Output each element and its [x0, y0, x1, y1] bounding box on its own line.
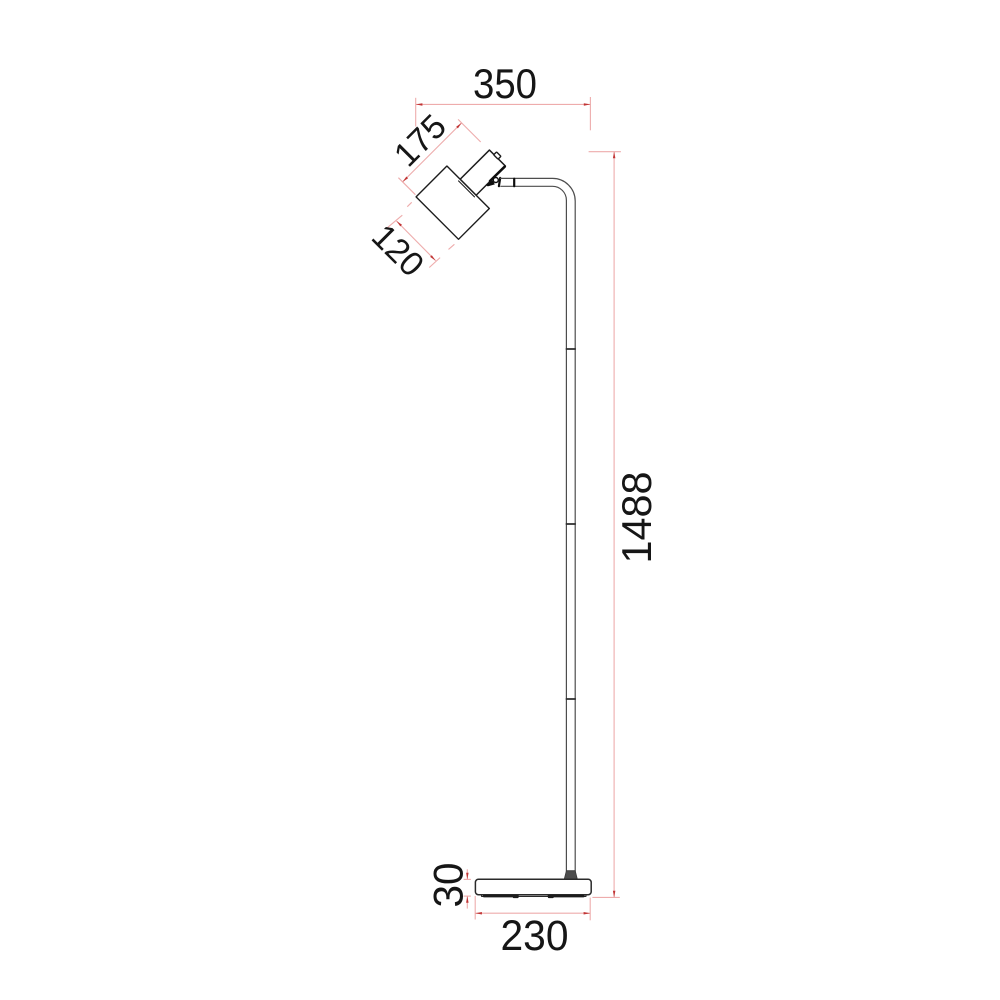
svg-text:1488: 1488	[613, 472, 660, 564]
svg-text:30: 30	[425, 863, 472, 908]
svg-text:230: 230	[501, 913, 569, 960]
svg-text:350: 350	[473, 60, 537, 107]
